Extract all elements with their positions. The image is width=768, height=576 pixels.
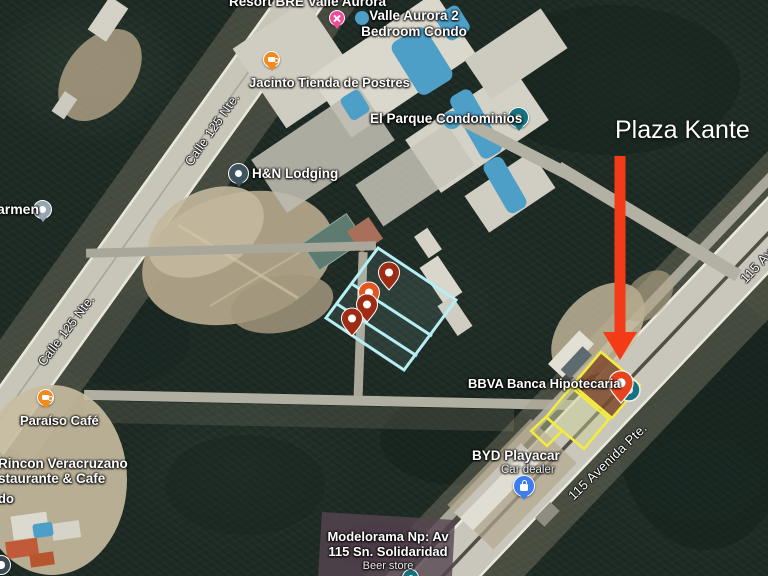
annotation-title: Plaza Kante <box>615 117 750 145</box>
spa-icon[interactable] <box>329 10 345 26</box>
poi-label-line: Bedroom Condo <box>350 24 478 40</box>
shopping-icon[interactable] <box>513 475 535 497</box>
annotation-arrow <box>603 156 637 360</box>
poi-label-rincon[interactable]: Rincon Veracruzano staurante & Cafe <box>0 456 128 486</box>
poi-label-line: Rincon Veracruzano <box>0 456 128 471</box>
poi-label-bbva[interactable]: BBVA Banca Hipotecaria <box>468 377 620 391</box>
poi-label-carmen-clipped[interactable]: armen <box>0 202 39 217</box>
poi-label-byd[interactable]: BYD Playacar <box>472 449 560 464</box>
place-icon[interactable] <box>228 163 249 184</box>
poi-label-line: Modelorama Np: Av <box>314 529 462 544</box>
cafe-icon[interactable] <box>263 51 280 68</box>
poi-label-el-parque[interactable]: El Parque Condominios <box>370 112 522 127</box>
poi-label-jacinto[interactable]: Jacinto Tienda de Postres <box>249 76 410 90</box>
poi-category-byd: Car dealer <box>501 464 555 477</box>
poi-label-paraiso[interactable]: Paraíso Café <box>20 414 99 428</box>
poi-label-valle-aurora[interactable]: Valle Aurora 2 Bedroom Condo <box>350 8 478 39</box>
cafe-icon[interactable] <box>37 389 54 406</box>
poi-label-line: 115 Sn. Solidaridad <box>314 544 462 559</box>
satellite-map[interactable]: Resort BRE Valle Aurora Valle Aurora 2 B… <box>0 0 768 576</box>
clipped-poi-icon[interactable] <box>0 555 11 575</box>
poi-label-modelorama[interactable]: Modelorama Np: Av 115 Sn. Solidaridad Be… <box>314 529 462 574</box>
poi-label-line: staurante & Cafe <box>0 471 128 486</box>
poi-label-hn-lodging[interactable]: H&N Lodging <box>252 167 338 182</box>
poi-category-modelorama: Beer store <box>314 559 462 574</box>
poi-label-line: Valle Aurora 2 <box>350 8 478 24</box>
poi-label-clipped[interactable]: do <box>0 492 14 506</box>
